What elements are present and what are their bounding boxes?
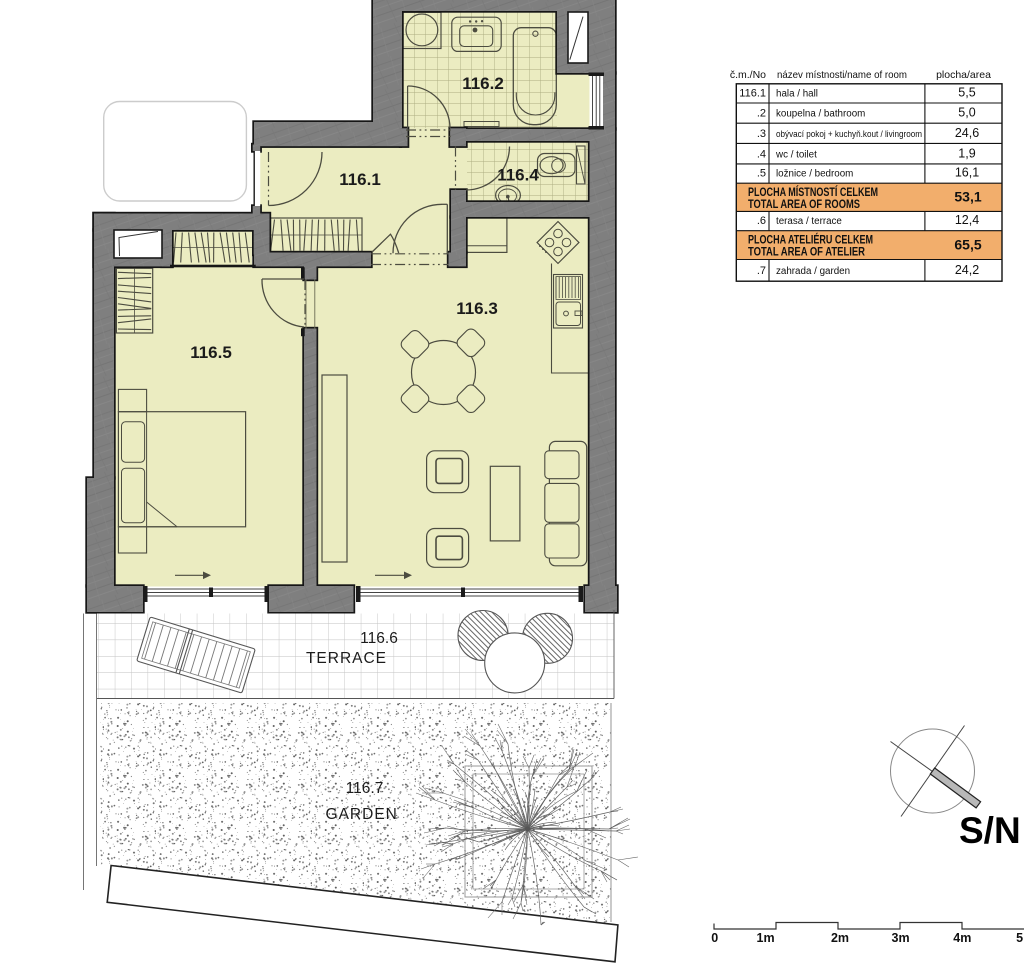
svg-text:zahrada / garden: zahrada / garden [776, 266, 850, 277]
svg-text:53,1: 53,1 [954, 189, 981, 205]
svg-text:.6: .6 [757, 215, 766, 227]
svg-text:ložnice / bedroom: ložnice / bedroom [776, 169, 853, 180]
svg-text:116.6: 116.6 [360, 630, 398, 647]
svg-text:TERRACE: TERRACE [306, 650, 387, 667]
svg-text:24,6: 24,6 [955, 126, 979, 140]
svg-text:wc / toilet: wc / toilet [775, 149, 817, 160]
svg-text:116.1: 116.1 [739, 88, 766, 100]
svg-text:.4: .4 [757, 148, 766, 160]
svg-text:.7: .7 [757, 265, 766, 277]
svg-text:5,5: 5,5 [958, 86, 975, 100]
svg-text:koupelna / bathroom: koupelna / bathroom [776, 109, 865, 120]
svg-text:3m: 3m [892, 931, 910, 945]
svg-text:5: 5 [1016, 931, 1023, 945]
svg-text:5,0: 5,0 [958, 106, 975, 120]
svg-text:116.1: 116.1 [339, 170, 381, 189]
svg-text:hala / hall: hala / hall [776, 89, 818, 100]
svg-text:plocha/area: plocha/area [936, 69, 991, 81]
svg-text:116.3: 116.3 [456, 299, 498, 318]
svg-text:obývací pokoj + kuchyň.kout /: obývací pokoj + kuchyň.kout / livingroom [776, 129, 922, 139]
svg-text:GARDEN: GARDEN [326, 806, 398, 823]
svg-text:4m: 4m [953, 931, 971, 945]
svg-text:16,1: 16,1 [955, 166, 979, 180]
svg-text:116.7: 116.7 [346, 780, 384, 797]
svg-text:S/N: S/N [959, 810, 1021, 851]
svg-text:116.5: 116.5 [190, 343, 232, 362]
svg-text:TOTAL AREA OF ROOMS: TOTAL AREA OF ROOMS [748, 199, 860, 211]
svg-text:116.4: 116.4 [497, 166, 539, 185]
svg-text:název místnosti/name of room: název místnosti/name of room [777, 69, 907, 81]
svg-text:.3: .3 [757, 128, 766, 140]
svg-text:116.2: 116.2 [462, 74, 504, 93]
svg-text:24,2: 24,2 [955, 263, 979, 277]
svg-text:.2: .2 [757, 108, 766, 120]
svg-text:0: 0 [711, 931, 718, 945]
svg-text:PLOCHA MÍSTNOSTÍ CELKEM: PLOCHA MÍSTNOSTÍ CELKEM [748, 186, 878, 199]
svg-text:1m: 1m [757, 931, 775, 945]
svg-text:.5: .5 [757, 168, 766, 180]
svg-text:1,9: 1,9 [958, 146, 975, 160]
svg-text:PLOCHA ATELIÉRU CELKEM: PLOCHA ATELIÉRU CELKEM [748, 234, 873, 247]
svg-text:č.m./No: č.m./No [730, 69, 766, 81]
svg-text:TOTAL AREA OF ATELIER: TOTAL AREA OF ATELIER [748, 247, 866, 259]
svg-text:65,5: 65,5 [954, 237, 981, 253]
svg-text:12,4: 12,4 [955, 213, 979, 227]
svg-text:2m: 2m [831, 931, 849, 945]
svg-text:terasa / terrace: terasa / terrace [776, 216, 842, 227]
